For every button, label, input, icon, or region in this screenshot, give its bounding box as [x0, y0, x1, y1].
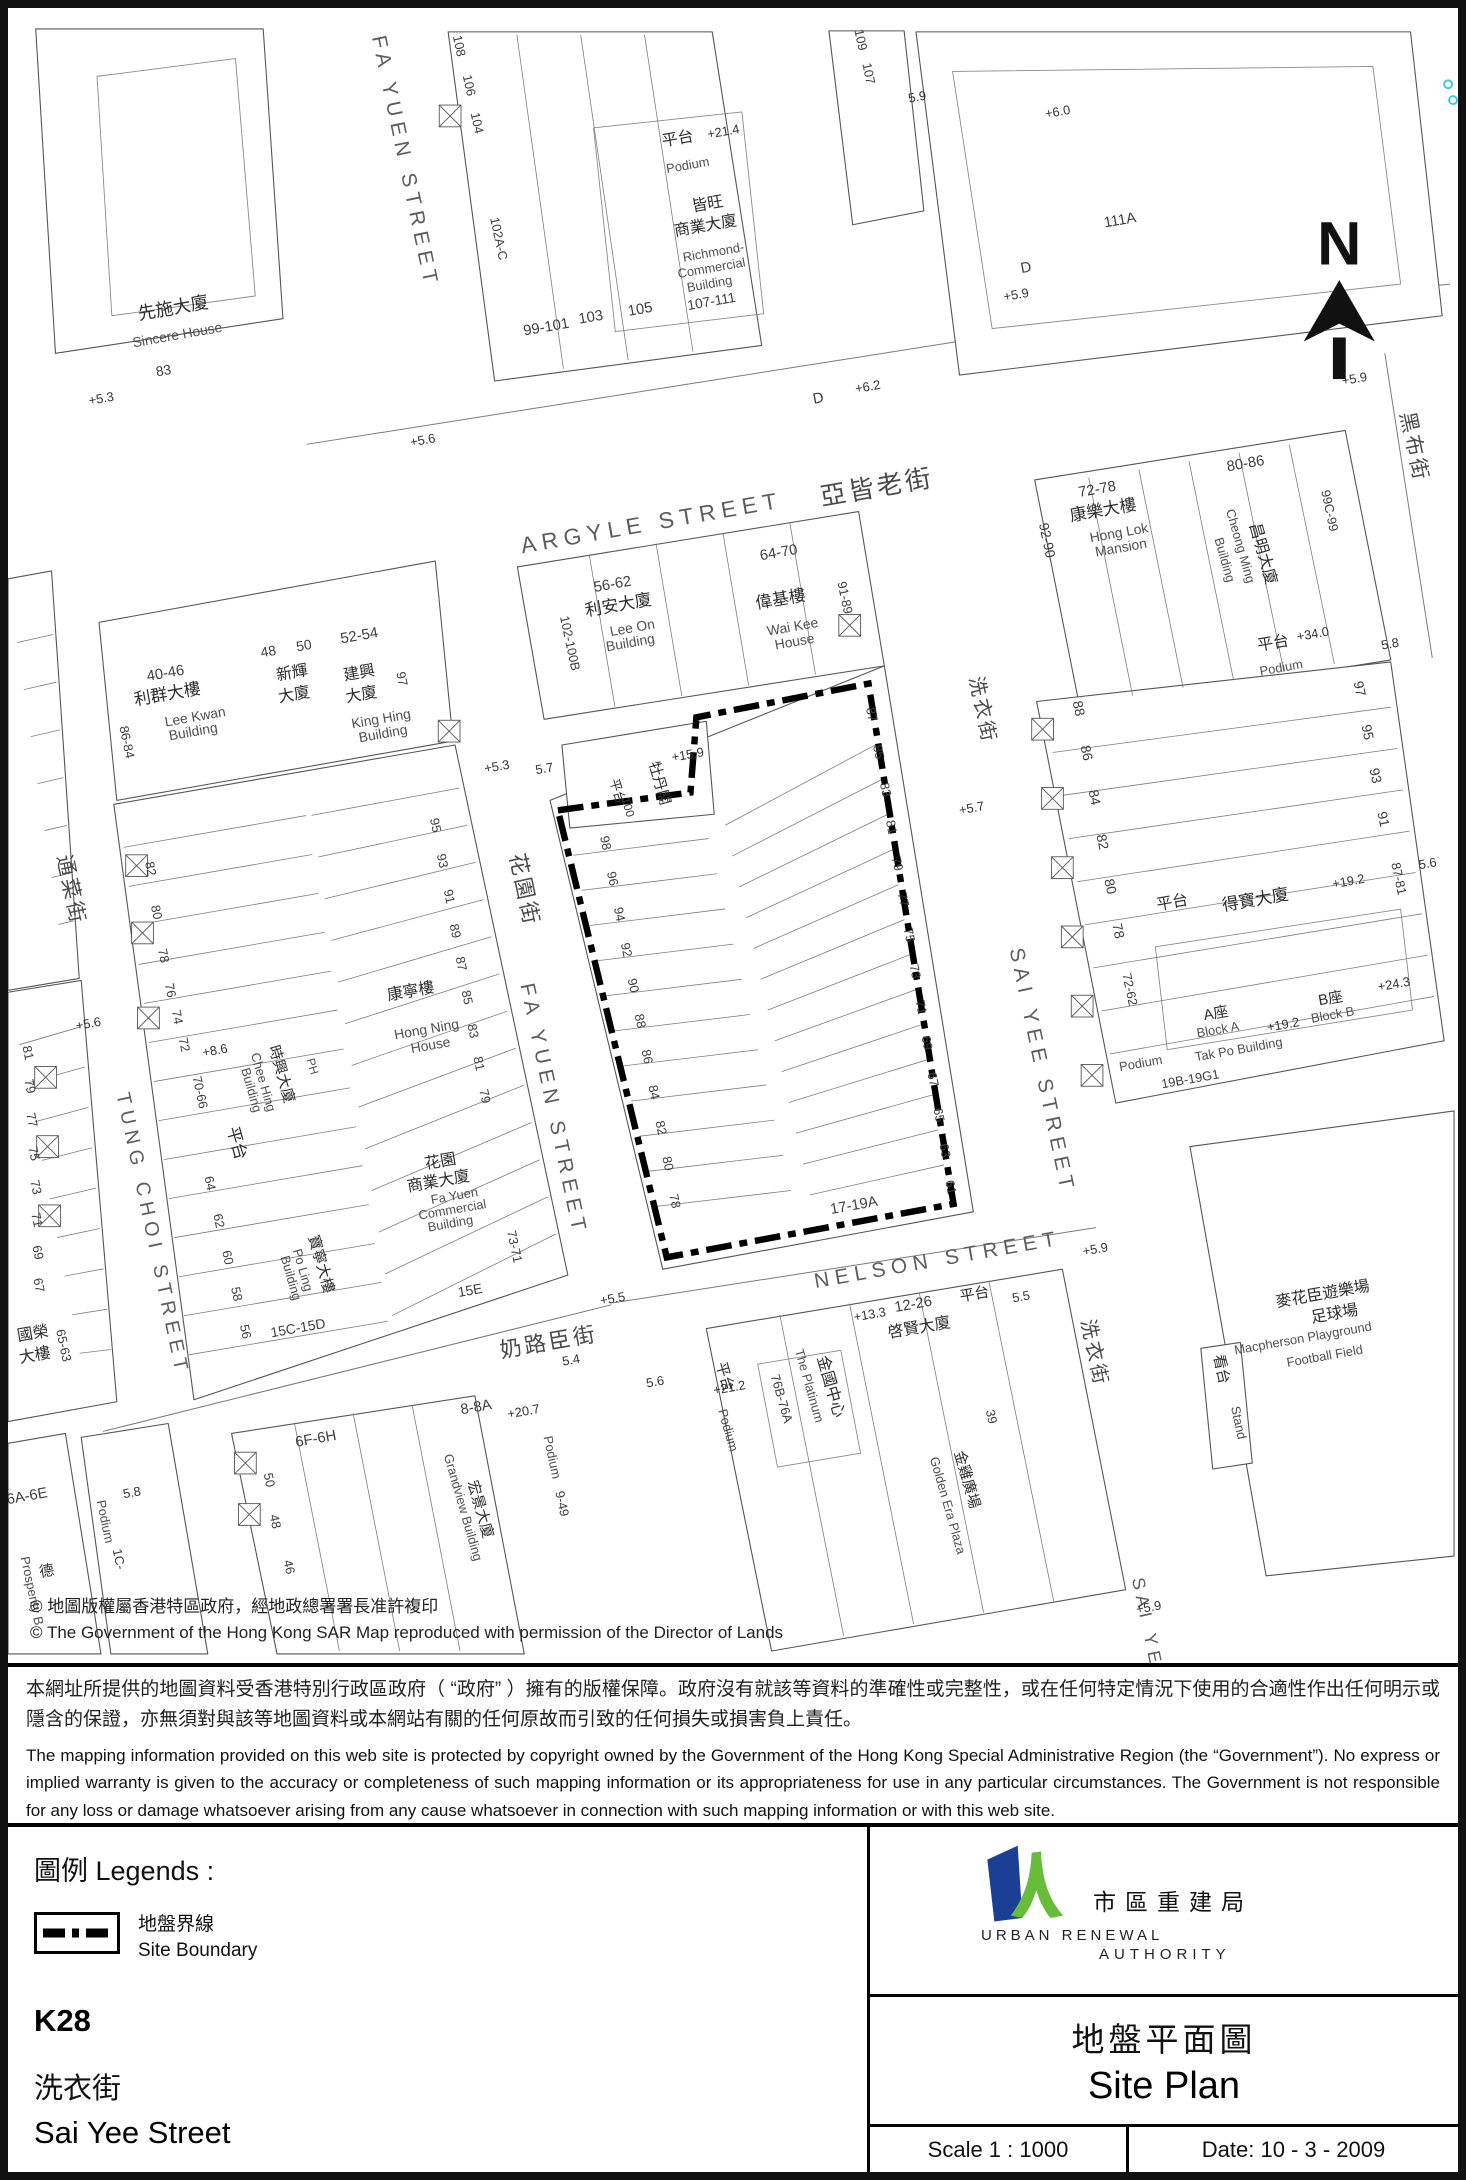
map-label: 5.7	[534, 759, 554, 777]
map-label: 93	[434, 852, 452, 869]
map-label: 63	[936, 1142, 954, 1159]
map-label: 81	[470, 1055, 488, 1072]
map-label: 5.6	[1417, 854, 1437, 872]
scale-value: Scale 1 : 1000	[870, 2127, 1129, 2172]
project-code: K28	[34, 2003, 867, 2039]
map-label: 75	[25, 1145, 43, 1162]
meta-row: Scale 1 : 1000 Date: 10 - 3 - 2009	[870, 2127, 1458, 2172]
map-label: 78	[155, 947, 173, 964]
dash-dot-line-icon	[41, 1919, 113, 1947]
map-label: 46	[281, 1558, 299, 1575]
map-label: 87	[863, 706, 881, 723]
map-symbol-cyan	[1444, 80, 1452, 88]
map-label: 82	[142, 860, 160, 877]
map-symbol-cyan	[1449, 96, 1457, 104]
disclaimer-text-en: The mapping information provided on this…	[26, 1742, 1440, 1825]
legend-item-site-boundary: 地盤界線 Site Boundary	[34, 1912, 867, 1963]
map-label: 58	[228, 1285, 246, 1302]
map-label: 97	[1351, 679, 1370, 697]
map-label: 74	[169, 1008, 187, 1025]
map-label: 83	[464, 1022, 482, 1039]
map-label: +5.3	[87, 389, 115, 408]
map-label: SAI YEE STREET	[1005, 946, 1080, 1196]
map-label: 95	[427, 817, 445, 834]
map-label: 39	[983, 1408, 1001, 1425]
legend-label-zh: 地盤界線	[138, 1912, 257, 1938]
map-label: 98	[597, 834, 615, 851]
map-label: 67	[30, 1277, 48, 1294]
map-label: 97	[393, 670, 411, 687]
map-label: 80	[148, 904, 166, 921]
map-label: 5.9	[907, 88, 927, 106]
city-block	[1190, 1111, 1454, 1576]
map-label: 80	[659, 1155, 677, 1172]
legend-pane: 圖例 Legends : 地盤界線 Site Boundary K28 洗衣街 …	[8, 1827, 870, 2172]
ura-name-zh: 市區重建局	[1093, 1883, 1253, 1917]
map-label: D	[812, 390, 825, 408]
map-label: +5.6	[75, 1014, 103, 1033]
drawing-title-en: Site Plan	[870, 2065, 1458, 2108]
map-label: 96	[604, 870, 622, 887]
map-copyright: © 地圖版權屬香港特區政府，經地政總署署長准許複印 © The Governme…	[30, 1594, 783, 1647]
map-label: +5.5	[599, 1289, 627, 1308]
map-label: 73	[907, 963, 925, 980]
map-label: 79	[889, 855, 907, 872]
street-curb	[1385, 353, 1432, 658]
map-label: FA YUEN STREET	[367, 33, 443, 290]
map-label: 5.5	[1011, 1287, 1031, 1305]
map-label: 87	[453, 955, 471, 972]
city-block	[8, 571, 79, 990]
copyright-line-en: © The Government of the Hong Kong SAR Ma…	[30, 1620, 783, 1646]
legend-title: 圖例 Legends :	[34, 1849, 867, 1888]
map-label: 73	[27, 1179, 45, 1196]
map-label: 56	[237, 1323, 255, 1340]
ura-logo-cell: 市區重建局 URBAN RENEWAL AUTHORITY	[870, 1827, 1458, 1997]
map-label: 85	[459, 989, 477, 1006]
copyright-line-zh: © 地圖版權屬香港特區政府，經地政總署署長准許複印	[30, 1594, 783, 1620]
map-label: 77	[895, 891, 913, 908]
map-label: 69	[29, 1244, 47, 1261]
map-label: 77	[23, 1111, 41, 1128]
map-label: 5.8	[1380, 635, 1400, 653]
map-label: 72	[176, 1036, 194, 1053]
map-label: 71	[913, 999, 931, 1016]
map-label: 60	[219, 1249, 237, 1266]
map-label: 75	[901, 926, 919, 943]
bottom-panel: 圖例 Legends : 地盤界線 Site Boundary K28 洗衣街 …	[8, 1827, 1458, 2172]
map-label: 79	[21, 1078, 39, 1095]
legend-label-en: Site Boundary	[138, 1938, 257, 1964]
title-pane: 市區重建局 URBAN RENEWAL AUTHORITY 地盤平面圖 Site…	[870, 1827, 1458, 2172]
map-label: 88	[632, 1012, 650, 1029]
drawing-title-zh: 地盤平面圖	[870, 2013, 1458, 2061]
site-plan-page: FA YUEN STREETARGYLE STREET亞皆老街花園街FA YUE…	[0, 0, 1466, 2180]
map-label: 61	[942, 1179, 960, 1196]
map-label: 5.6	[645, 1373, 665, 1391]
ura-name-en-2: AUTHORITY	[1099, 1946, 1349, 1963]
map-label: 79	[476, 1088, 494, 1105]
map-label: +6.2	[854, 377, 882, 396]
city-block	[1037, 662, 1445, 1103]
map-label: SAI YE	[1128, 1576, 1167, 1663]
map-label: 83	[877, 781, 895, 798]
map-label: 86	[639, 1048, 657, 1065]
map-label: 83	[154, 361, 172, 379]
map-label: 78	[666, 1192, 684, 1209]
map-label: 84	[645, 1084, 663, 1101]
project-name-zh: 洗衣街	[34, 2065, 867, 2107]
map-label: 76	[162, 982, 180, 999]
map-label: 65	[930, 1106, 948, 1123]
map-label: 92	[618, 941, 636, 958]
map-label: 9-49	[552, 1490, 572, 1518]
city-block	[829, 31, 924, 225]
map-label: 亞皆老街	[818, 463, 936, 511]
date-value: Date: 10 - 3 - 2009	[1129, 2127, 1458, 2172]
map-label: 64	[201, 1175, 219, 1192]
map-label: 48	[267, 1513, 285, 1530]
map-label: 奶路臣街	[498, 1321, 600, 1363]
map-label: +5.9	[1135, 1597, 1163, 1616]
map-label: 67	[924, 1071, 942, 1088]
map-label: 89	[447, 922, 465, 939]
map-label: +5.3	[483, 757, 511, 776]
north-arrow-shaft	[1333, 337, 1346, 379]
map-label: 5.8	[122, 1483, 142, 1501]
map-area: FA YUEN STREETARGYLE STREET亞皆老街花園街FA YUE…	[8, 8, 1458, 1663]
site-boundary-symbol	[34, 1912, 120, 1954]
map-label: 94	[611, 906, 629, 923]
map-label: 5.4	[561, 1351, 581, 1369]
map-label: 81	[883, 819, 901, 836]
map-label: 85	[870, 743, 888, 760]
map-label: 71	[28, 1211, 46, 1228]
map-label: 62	[210, 1212, 228, 1229]
map-canvas: FA YUEN STREETARGYLE STREET亞皆老街花園街FA YUE…	[8, 8, 1458, 1663]
map-label: 50	[295, 636, 313, 654]
disclaimer-box: 本網址所提供的地圖資料受香港特別行政區政府（ “政府” ）擁有的版權保障。政府沒…	[8, 1663, 1458, 1827]
map-label: +5.9	[1081, 1239, 1109, 1258]
map-label: 69	[918, 1034, 936, 1051]
disclaimer-text-zh: 本網址所提供的地圖資料受香港特別行政區政府（ “政府” ）擁有的版權保障。政府沒…	[26, 1675, 1440, 1736]
map-label: 洗衣街	[964, 674, 1000, 745]
ura-name-en-1: URBAN RENEWAL	[981, 1927, 1349, 1944]
map-label: 82	[652, 1119, 670, 1136]
map-label: 48	[259, 642, 277, 660]
north-label: N	[1317, 208, 1361, 277]
map-label: Podium	[541, 1434, 565, 1480]
drawing-title-cell: 地盤平面圖 Site Plan	[870, 1997, 1458, 2127]
city-block	[114, 745, 568, 1400]
project-name-en: Sai Yee Street	[34, 2115, 867, 2151]
map-label: 黑布街	[1395, 410, 1432, 484]
map-label: 82	[1093, 833, 1112, 851]
map-label: 90	[625, 977, 643, 994]
map-label: +20.7	[506, 1401, 541, 1421]
map-label: 81	[19, 1044, 37, 1061]
map-label: 91	[441, 888, 459, 905]
map-label: +5.6	[409, 430, 437, 449]
map-label: 50	[261, 1471, 279, 1488]
map-label: 花園街	[505, 851, 545, 929]
ura-logo-icon	[979, 1841, 1075, 1925]
map-label: +5.7	[958, 798, 986, 817]
